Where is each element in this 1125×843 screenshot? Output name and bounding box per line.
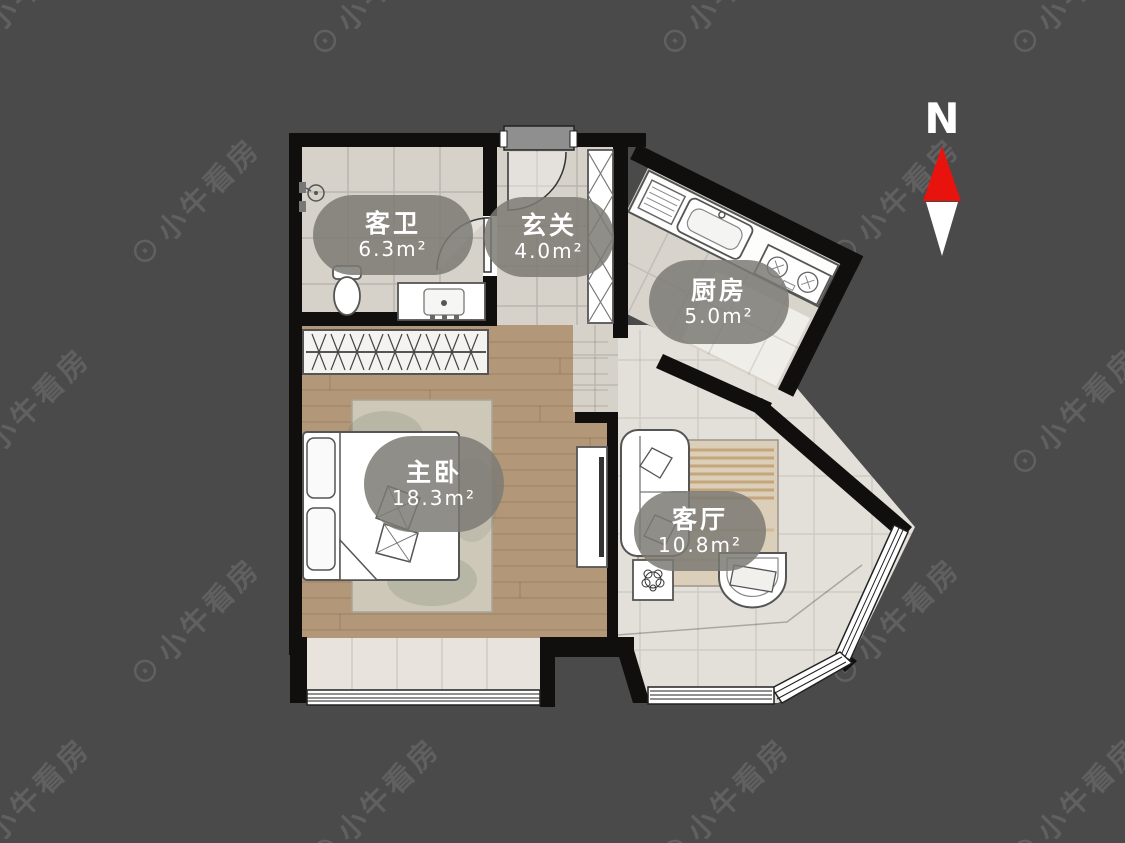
pillow [307, 508, 335, 570]
room-label-kitchen: 厨房 5.0m² [649, 260, 789, 344]
room-name: 玄关 [521, 212, 577, 240]
toilet [334, 277, 360, 315]
room-label-master-bedroom: 主卧 18.3m² [364, 436, 504, 532]
room-area: 4.0m² [514, 240, 583, 262]
compass-north-label: N [904, 98, 980, 140]
room-area: 6.3m² [358, 238, 427, 260]
shower-valve [299, 182, 306, 193]
room-label-living-room: 客厅 10.8m² [634, 491, 766, 571]
compass-needle-north-icon [923, 146, 961, 201]
room-name: 厨房 [691, 277, 747, 305]
vanity-faucet [441, 300, 447, 306]
room-name: 客卫 [365, 210, 421, 238]
compass-needle-south-icon [926, 202, 958, 256]
shower-valve [299, 201, 306, 212]
room-label-foyer: 玄关 4.0m² [484, 197, 614, 277]
room-area: 10.8m² [658, 534, 742, 556]
pillow [307, 438, 335, 498]
room-label-guest-bathroom: 客卫 6.3m² [313, 195, 473, 275]
bedroom-bay-sill [307, 638, 540, 690]
room-area: 18.3m² [392, 487, 476, 509]
room-name: 客厅 [672, 506, 728, 534]
entry-door [504, 126, 574, 150]
room-area: 5.0m² [684, 305, 753, 327]
tv [599, 457, 604, 557]
compass: N [904, 98, 980, 256]
room-name: 主卧 [406, 459, 462, 487]
floor-plan-page: ⊙小牛看房⊙小牛看房⊙小牛看房⊙小牛看房⊙小牛看房⊙小牛看房⊙小牛看房⊙小牛看房… [0, 0, 1125, 843]
